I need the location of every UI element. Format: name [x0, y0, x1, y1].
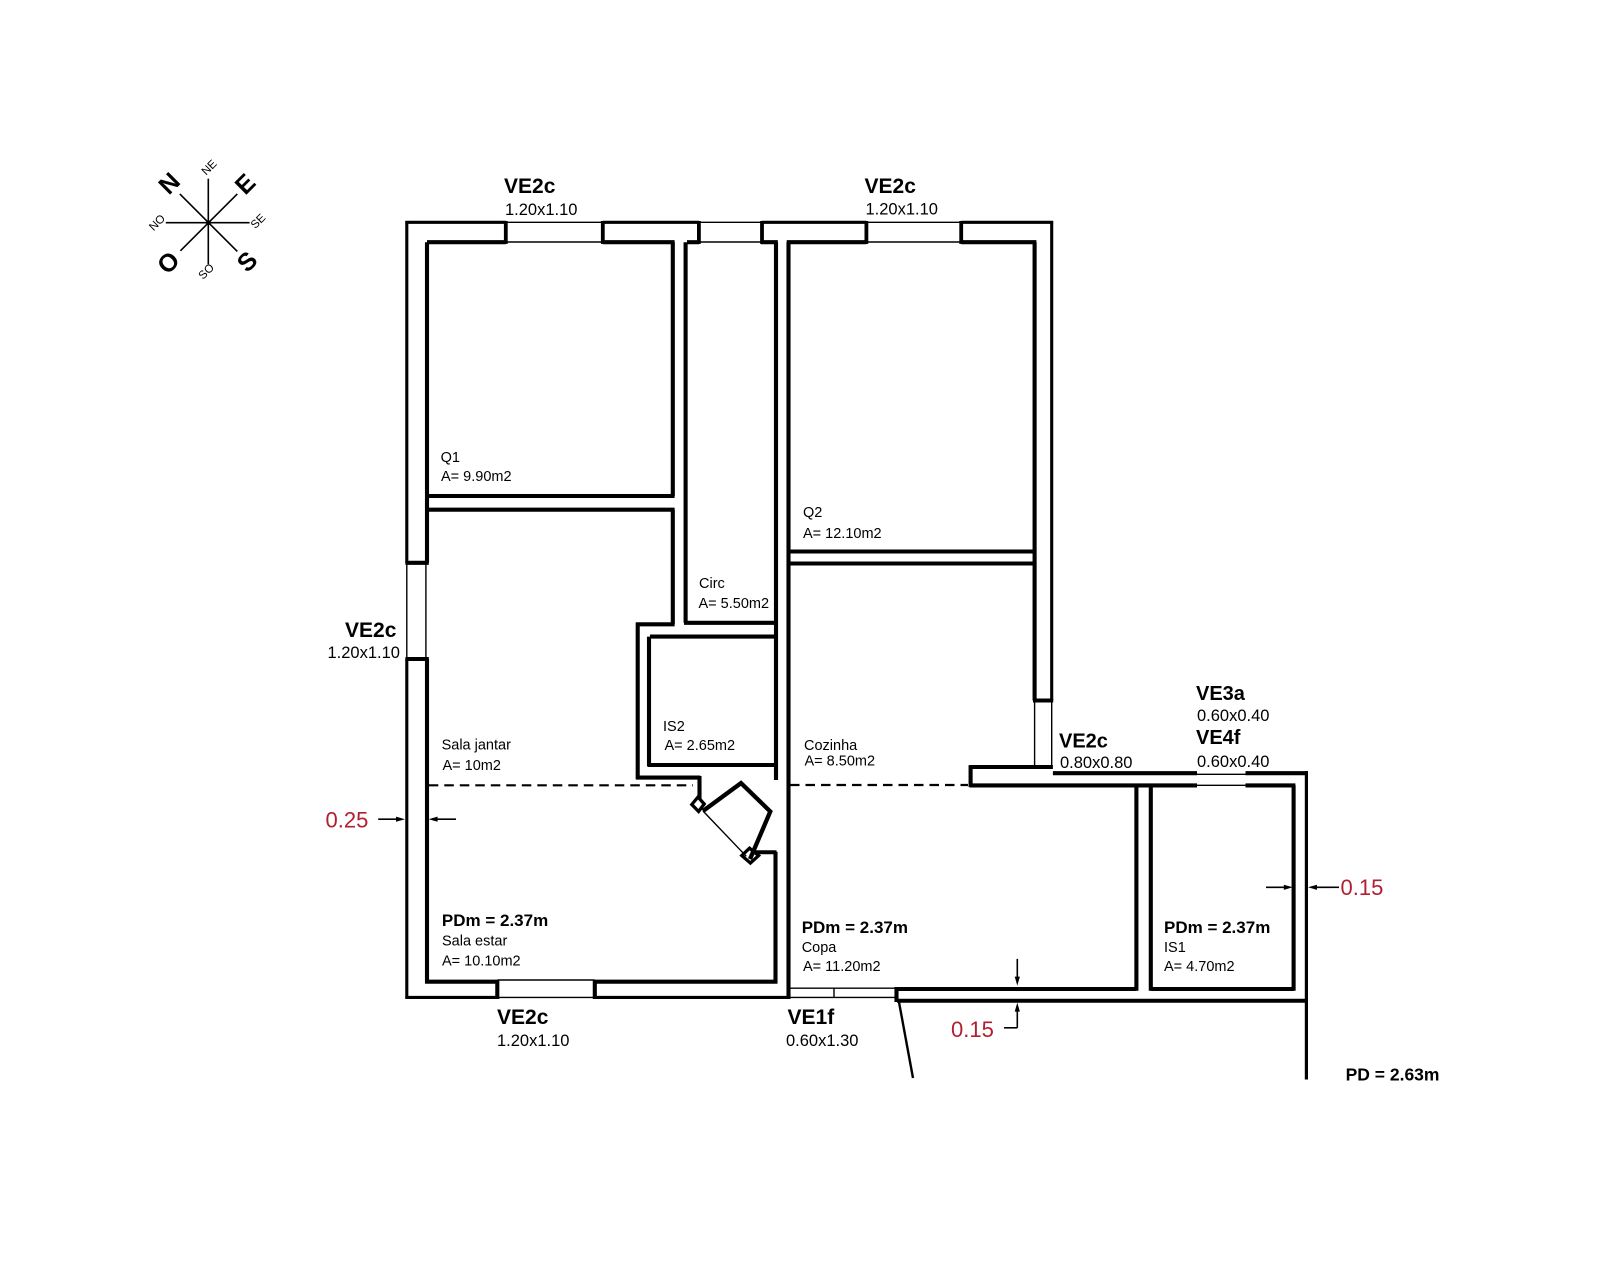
svg-text:Sala jantar: Sala jantar	[442, 737, 511, 753]
svg-text:IS1: IS1	[1164, 940, 1186, 956]
svg-text:A= 12.10m2: A= 12.10m2	[803, 526, 882, 542]
svg-text:PDm = 2.37m: PDm = 2.37m	[1164, 918, 1270, 937]
svg-text:A= 10m2: A= 10m2	[443, 758, 501, 774]
svg-text:A= 5.50m2: A= 5.50m2	[699, 596, 770, 612]
svg-text:Circ: Circ	[699, 576, 725, 592]
svg-text:VE2c: VE2c	[1059, 731, 1108, 753]
svg-text:Q2: Q2	[803, 505, 822, 521]
svg-text:A= 9.90m2: A= 9.90m2	[441, 469, 512, 485]
svg-text:VE2c: VE2c	[497, 1006, 549, 1029]
svg-text:A= 8.50m2: A= 8.50m2	[805, 754, 876, 770]
svg-text:0.60x0.40: 0.60x0.40	[1197, 707, 1269, 725]
svg-text:0.60x0.40: 0.60x0.40	[1197, 753, 1269, 771]
svg-text:0.15: 0.15	[951, 1017, 994, 1042]
svg-text:Sala estar: Sala estar	[442, 934, 507, 950]
svg-text:VE1f: VE1f	[788, 1006, 836, 1029]
svg-text:0.15: 0.15	[1341, 875, 1384, 900]
svg-text:IS2: IS2	[663, 719, 685, 735]
svg-text:0.25: 0.25	[326, 808, 369, 833]
svg-text:1.20x1.10: 1.20x1.10	[866, 201, 938, 219]
svg-text:A= 11.20m2: A= 11.20m2	[803, 959, 881, 975]
svg-text:PD = 2.63m: PD = 2.63m	[1346, 1065, 1440, 1085]
svg-text:A= 2.65m2: A= 2.65m2	[665, 738, 736, 754]
svg-text:Q1: Q1	[441, 450, 460, 466]
svg-text:A= 10.10m2: A= 10.10m2	[442, 954, 521, 970]
svg-text:1.20x1.10: 1.20x1.10	[505, 201, 577, 219]
svg-text:1.20x1.10: 1.20x1.10	[497, 1032, 569, 1050]
svg-text:Copa: Copa	[802, 940, 838, 956]
svg-text:VE4f: VE4f	[1196, 727, 1241, 749]
svg-text:0.60x1.30: 0.60x1.30	[786, 1032, 858, 1050]
svg-text:0.80x0.80: 0.80x0.80	[1060, 754, 1132, 772]
svg-text:VE2c: VE2c	[345, 619, 397, 642]
svg-text:VE2c: VE2c	[504, 175, 556, 198]
svg-text:VE2c: VE2c	[865, 175, 917, 198]
svg-text:VE3a: VE3a	[1196, 683, 1246, 705]
svg-text:1.20x1.10: 1.20x1.10	[328, 644, 400, 662]
svg-text:PDm = 2.37m: PDm = 2.37m	[802, 918, 908, 937]
svg-text:PDm = 2.37m: PDm = 2.37m	[442, 911, 548, 930]
svg-text:A= 4.70m2: A= 4.70m2	[1164, 959, 1235, 975]
svg-text:Cozinha: Cozinha	[804, 738, 858, 754]
